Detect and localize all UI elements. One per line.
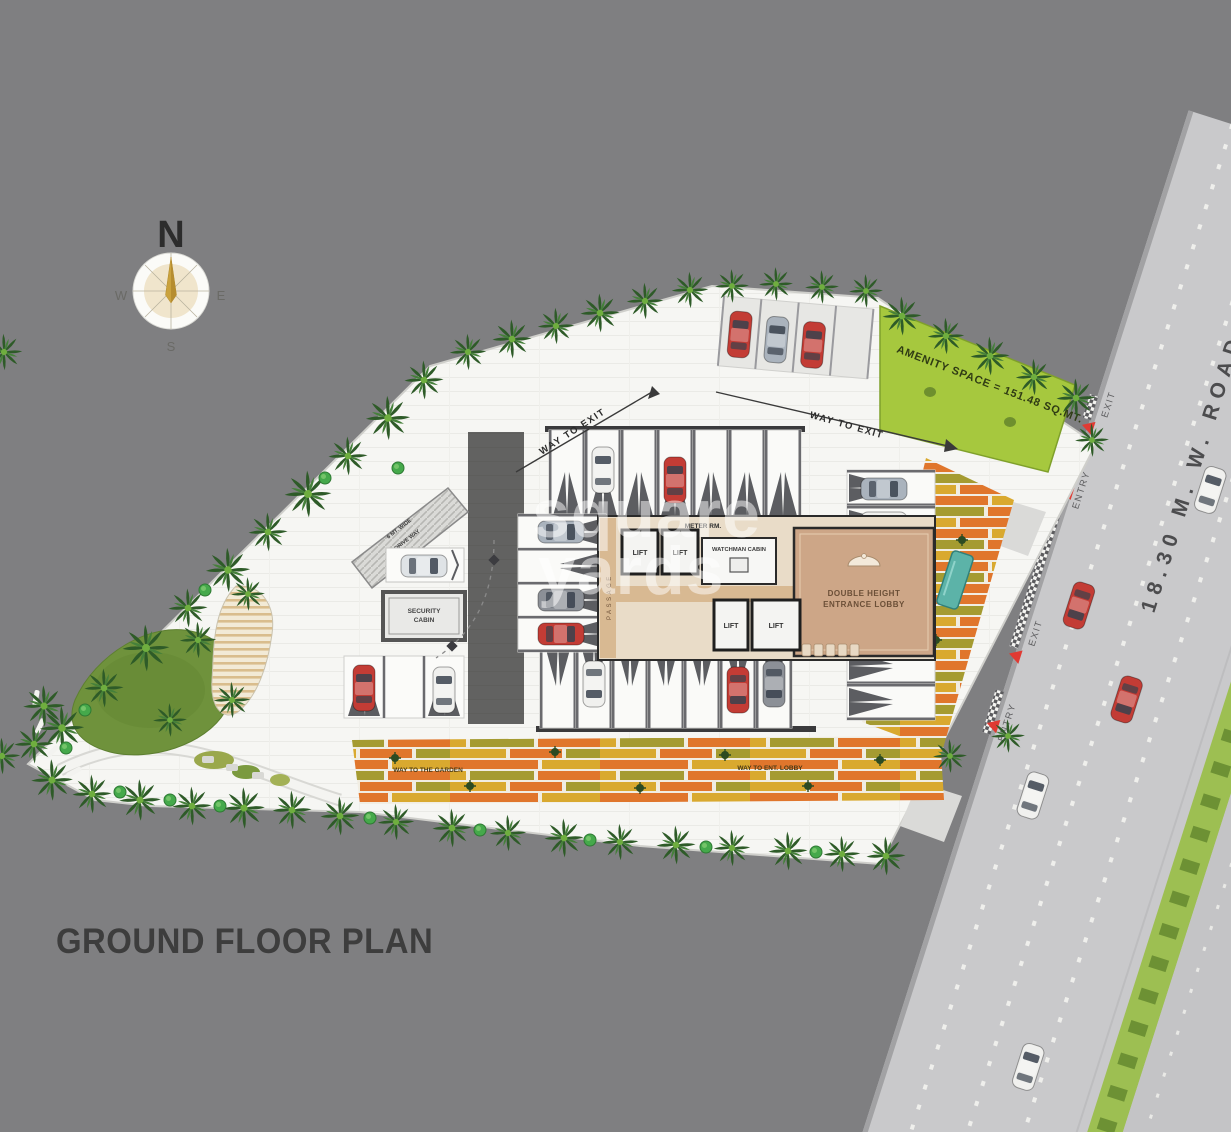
lobby-planters — [802, 644, 859, 656]
passage-label: PASSAGE — [607, 574, 613, 620]
stilt-parking-left-column — [518, 514, 606, 652]
compass-south-label: S — [167, 339, 176, 354]
paving-label-left: WAY TO THE GARDEN — [393, 767, 463, 774]
compass-west-label: W — [115, 288, 128, 303]
visitor-parking-stalls — [344, 656, 464, 718]
ground-floor-plan-canvas: 18.30 M. W. ROAD EXIT ENTRY EXIT ENTRY — [0, 0, 1231, 1132]
paving-label-right: WAY TO ENT. LOBBY — [737, 765, 803, 772]
building-block: PASSAGE METER RM. LIFT LIFT WATCHMAN CAB… — [518, 426, 935, 732]
building-core: PASSAGE METER RM. LIFT LIFT WATCHMAN CAB… — [598, 516, 935, 660]
lift-label-2: LIFT — [673, 550, 688, 557]
compass-north-label: N — [157, 214, 184, 256]
lift-label-4: LIFT — [769, 623, 784, 630]
lobby-label-line1: DOUBLE HEIGHT — [828, 589, 901, 598]
lobby-label-line2: ENTRANCE LOBBY — [823, 600, 905, 609]
compass-rose: N W E S — [115, 214, 226, 354]
security-cabin-label-line1: SECURITY — [408, 608, 442, 615]
security-cabin-label-line2: CABIN — [414, 617, 435, 624]
page-title: GROUND FLOOR PLAN — [56, 922, 433, 962]
site-plan-drawing: 18.30 M. W. ROAD EXIT ENTRY EXIT ENTRY — [0, 0, 1231, 1132]
security-cabin: SECURITY CABIN — [383, 548, 465, 640]
stilt-parking-top-row — [545, 426, 805, 518]
lift-label-1: LIFT — [633, 550, 648, 557]
compass-east-label: E — [217, 288, 226, 303]
top-parking-bay — [718, 296, 874, 379]
lift-label-3: LIFT — [724, 623, 739, 630]
watchman-label: WATCHMAN CABIN — [712, 547, 766, 553]
